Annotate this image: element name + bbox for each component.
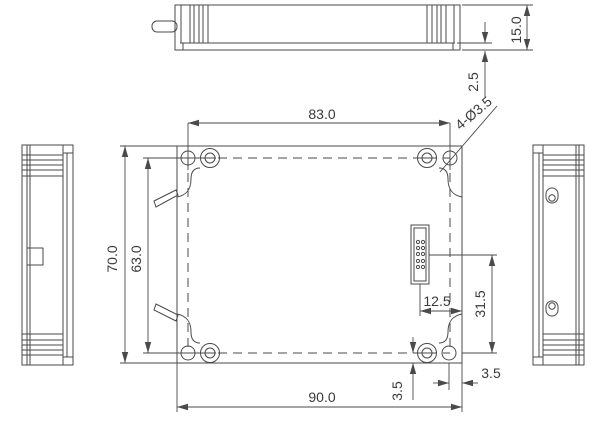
side-tab-upper [154, 190, 178, 207]
dim-label-12-5: 12.5 [423, 293, 450, 309]
left-side-bottom-ribs [22, 334, 63, 355]
dim-hole-edge-offset-right: 3.5 [433, 363, 501, 390]
dim-label-2-5: 2.5 [465, 72, 481, 92]
dim-label-3-5-vertical: 3.5 [389, 381, 405, 401]
dim-label-63: 63.0 [128, 245, 144, 272]
right-side-flange-edge [533, 145, 543, 365]
dim-hole-span-horizontal: 83.0 [188, 106, 450, 170]
side-tab-lower [154, 304, 178, 321]
left-side-inner-lines [27, 145, 67, 365]
dim-label-90: 90.0 [308, 389, 335, 405]
dim-hole-span-vertical: 63.0 [128, 158, 205, 353]
right-side-view [533, 145, 584, 365]
right-side-bottom-ribs [543, 334, 584, 355]
dimension-annotations: 83.0 15.0 2.5 4-Ø3.5 70.0 [104, 5, 533, 412]
dim-flange-offset: 2.5 [457, 22, 492, 97]
dim-mounting-holes-callout: 4-Ø3.5 [440, 93, 497, 172]
left-side-switch-opening [27, 248, 43, 265]
dim-label-31-5: 31.5 [472, 290, 488, 317]
dim-hole-edge-offset-bottom: 3.5 [389, 337, 413, 401]
right-side-inner-lines [539, 145, 579, 365]
dim-label-3-5-horizontal: 3.5 [481, 365, 501, 381]
top-view [152, 5, 460, 50]
right-side-top-ribs [543, 155, 584, 176]
dim-label-4xd3-5: 4-Ø3.5 [452, 93, 495, 133]
connector-pins [416, 240, 424, 268]
top-view-flange-line [180, 43, 455, 50]
top-view-left-ribs [181, 5, 208, 43]
dim-label-83: 83.0 [308, 106, 335, 122]
dim-label-70: 70.0 [104, 245, 120, 272]
top-view-pin-protrusion [152, 21, 177, 32]
dim-connector-offset-horizontal: 12.5 [420, 284, 462, 316]
top-view-right-ribs [427, 5, 454, 43]
engineering-drawing-canvas: 83.0 15.0 2.5 4-Ø3.5 70.0 [0, 0, 600, 432]
keyhole-slot-lower [546, 301, 558, 316]
dim-label-15: 15.0 [508, 16, 524, 43]
dim-overall-width: 90.0 [177, 363, 462, 412]
left-side-top-ribs [22, 155, 63, 176]
front-view [154, 146, 462, 363]
connector-10pin [411, 225, 429, 284]
technical-drawing-page: 83.0 15.0 2.5 4-Ø3.5 70.0 [0, 0, 600, 432]
left-side-flange-edge [63, 145, 73, 365]
left-side-view [22, 145, 73, 365]
keyhole-slot-upper [546, 188, 558, 203]
